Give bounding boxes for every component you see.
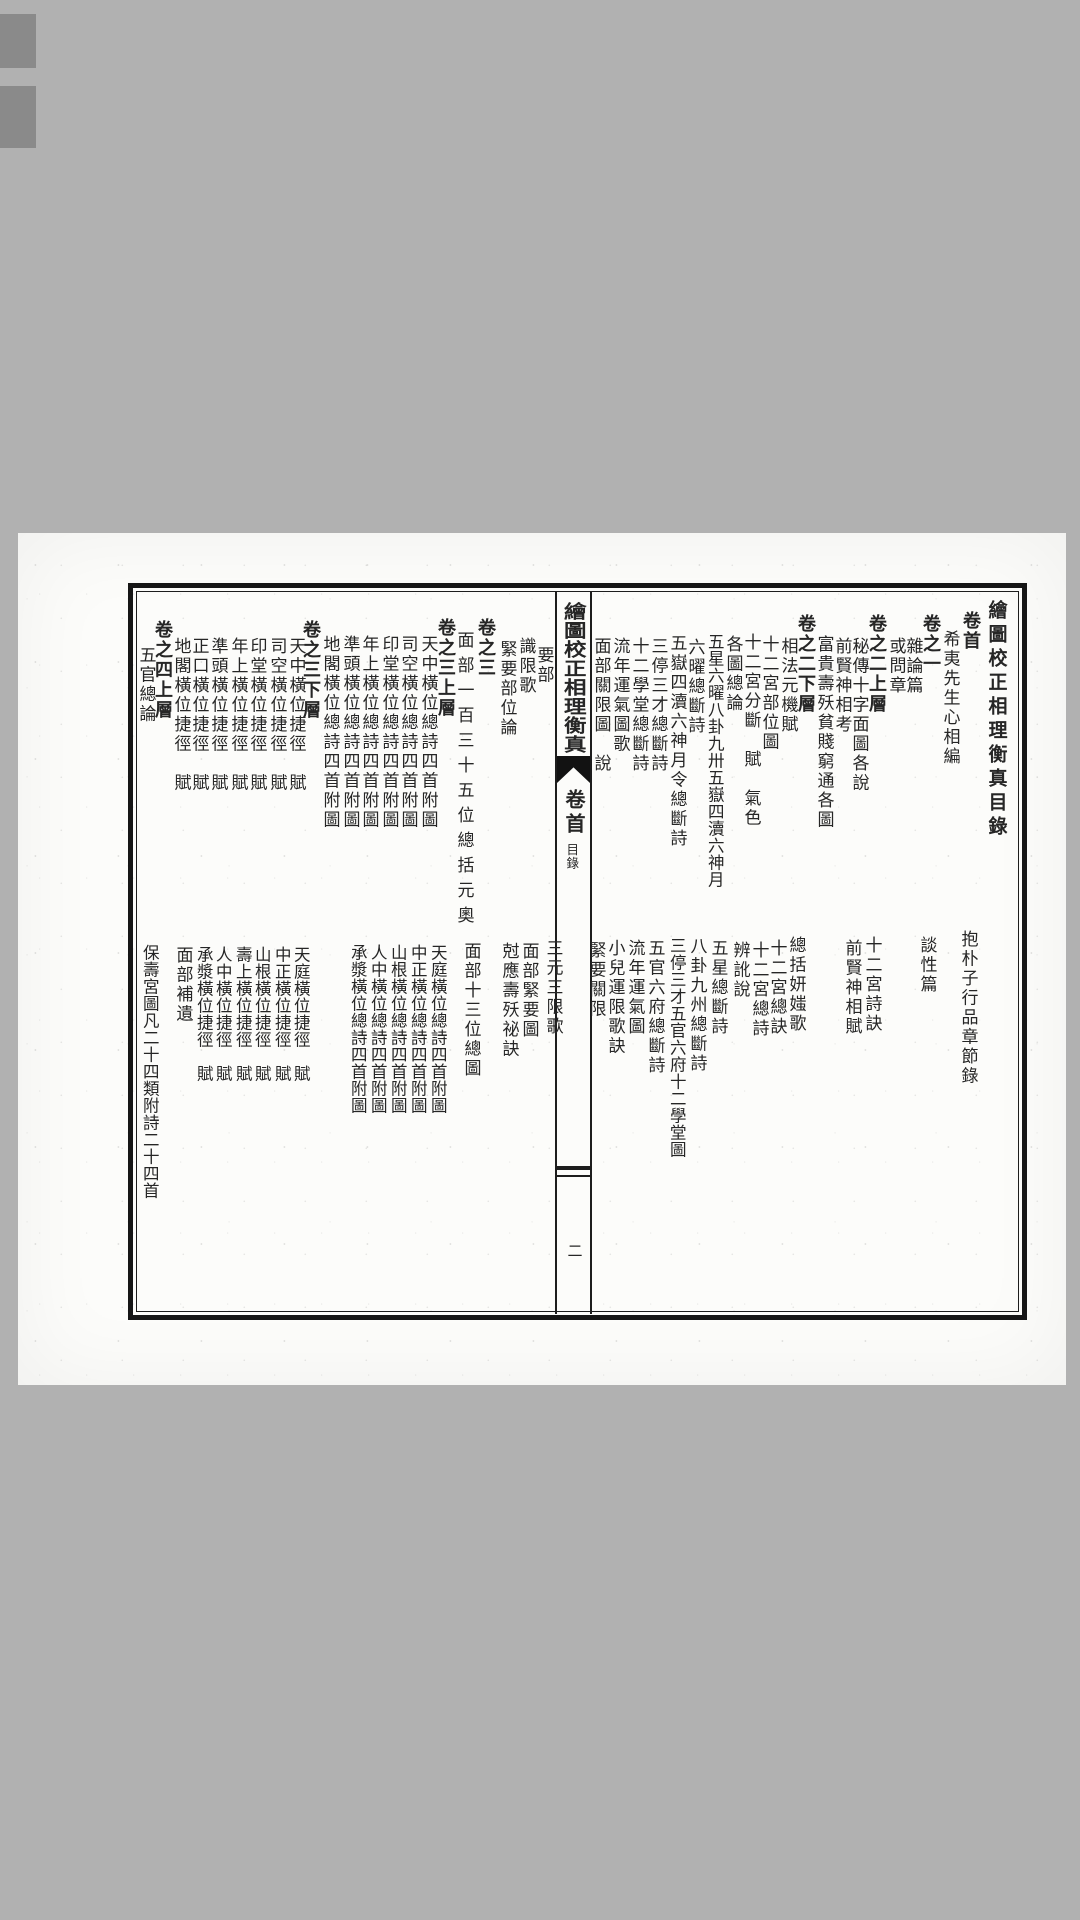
toc-entry: 面部一百三十五位總括元奧 bbox=[456, 631, 473, 931]
toc-entry: 十二宮詩訣 bbox=[864, 936, 881, 1034]
toc-entry: 人中橫位捷徑 賦 bbox=[214, 946, 231, 1082]
toc-section-header: 卷之二上層 bbox=[868, 614, 886, 714]
toc-entry: 希夷先生心相編 bbox=[942, 630, 959, 767]
spine-tick-mark bbox=[557, 1166, 590, 1170]
toc-entry: 天中橫位總詩四首附圖 bbox=[420, 635, 437, 830]
toc-entry: 十二宮總訣 bbox=[769, 939, 786, 1037]
spine-book-title: 繪圖校正相理衡真 bbox=[563, 602, 586, 754]
toc-entry: 雜論篇 bbox=[905, 637, 922, 696]
toc-entry: 抱朴子行品章節錄 bbox=[960, 930, 977, 1086]
toc-entry: 山根橫位捷徑 賦 bbox=[253, 946, 270, 1082]
toc-entry: 面部補遺 bbox=[175, 946, 192, 1024]
toc-entry: 辨訛說 bbox=[732, 941, 749, 1000]
toc-entry: 總括妍媸歌 bbox=[788, 936, 805, 1034]
toc-entry: 六曜總斷詩 bbox=[687, 638, 704, 736]
toc-entry: 十二學堂總斷詩 bbox=[631, 637, 648, 774]
toc-entry: 地閣橫位捷徑 賦 bbox=[173, 637, 190, 793]
spine-tick-mark bbox=[557, 1175, 590, 1177]
toc-entry: 富貴壽殀貧賤窮通各圖 bbox=[816, 635, 833, 830]
toc-title: 繪圖校正相理衡真目錄 bbox=[987, 600, 1006, 840]
toc-entry: 中正橫位總詩四首附圖 bbox=[409, 944, 426, 1114]
toc-entry: 天庭橫位捷徑 賦 bbox=[292, 946, 309, 1082]
toc-entry: 緊要關限 bbox=[588, 941, 605, 1019]
toc-entry: 或問章 bbox=[888, 637, 905, 696]
toc-entry: 五官總論 bbox=[138, 646, 155, 724]
toc-entry: 中正橫位捷徑 賦 bbox=[273, 946, 290, 1082]
scanned-book-page: 繪圖校正相理衡真 卷首 目錄 二 繪圖校正相理衡真目錄卷首希夷先生心相編卷之一雜… bbox=[0, 0, 1080, 1920]
toc-entry: 正口橫位捷徑 賦 bbox=[191, 637, 208, 793]
toc-entry: 談性篇 bbox=[919, 936, 936, 995]
spine-volume-label: 卷首 bbox=[563, 789, 583, 837]
toc-entry: 準頭橫位捷徑 賦 bbox=[210, 637, 227, 793]
toc-entry: 前賢神相賦 bbox=[844, 939, 861, 1037]
toc-section-header: 卷之二下層 bbox=[797, 614, 815, 714]
toc-entry: 年上橫位總詩四首附圖 bbox=[361, 635, 378, 830]
toc-entry: 天庭橫位總詩四首附圖 bbox=[429, 944, 446, 1114]
toc-section-header: 卷之三 bbox=[477, 618, 495, 678]
toc-section-header: 卷首 bbox=[962, 611, 980, 651]
toc-entry: 保壽宮圖凡二十四類附詩二十四首 bbox=[141, 944, 158, 1199]
toc-entry: 三元三限歌 bbox=[545, 939, 562, 1037]
toc-entry: 印堂橫位總詩四首附圖 bbox=[381, 635, 398, 830]
toc-entry: 八卦九州總斷詩 bbox=[689, 937, 706, 1074]
toc-entry: 司空橫位捷徑 賦 bbox=[269, 637, 286, 793]
spine-section-label: 目錄 bbox=[565, 843, 578, 870]
toc-entry: 天中橫位捷徑 賦 bbox=[288, 637, 305, 793]
toc-entry: 三停三才五官六府十二學堂圖 bbox=[668, 937, 685, 1158]
toc-entry: 尅應壽殀祕訣 bbox=[501, 942, 518, 1059]
toc-entry: 人中橫位總詩四首附圖 bbox=[369, 944, 386, 1114]
toc-entry: 十二宮分斷 賦 氣色 bbox=[743, 633, 760, 828]
toc-entry: 識限歌 bbox=[518, 637, 535, 696]
toc-entry: 準頭橫位總詩四首附圖 bbox=[342, 635, 359, 830]
toc-entry: 流年運氣圖歌 bbox=[612, 637, 629, 754]
toc-entry: 壽上橫位捷徑 賦 bbox=[234, 946, 251, 1082]
toc-section-header: 卷之一 bbox=[922, 614, 940, 674]
toc-entry: 五星總斷詩 bbox=[710, 939, 727, 1037]
toc-entry: 面部十三位總圖 bbox=[463, 942, 480, 1079]
toc-entry: 承漿橫位捷徑 賦 bbox=[195, 946, 212, 1082]
toc-entry: 年上橫位捷徑 賦 bbox=[230, 637, 247, 793]
toc-entry: 面部緊要圖 bbox=[521, 942, 538, 1040]
toc-entry: 地閣橫位總詩四首附圖 bbox=[322, 635, 339, 830]
toc-entry: 印堂橫位捷徑 賦 bbox=[249, 637, 266, 793]
toc-entry: 流年運氣圖 bbox=[627, 939, 644, 1037]
toc-section-header: 卷之三上層 bbox=[437, 618, 455, 718]
toc-entry: 相法元機賦 bbox=[780, 637, 797, 735]
scanner-artifact bbox=[0, 86, 36, 148]
toc-entry: 緊要部位論 bbox=[499, 640, 516, 738]
toc-entry: 五官六府總斷詩 bbox=[647, 939, 664, 1076]
toc-entry: 秘傳十字面圖各說 bbox=[851, 637, 868, 793]
toc-entry: 三停三才總斷詩 bbox=[650, 637, 667, 774]
toc-entry: 前賢神相考 bbox=[834, 637, 851, 735]
toc-entry: 小兒運限歌訣 bbox=[607, 939, 624, 1056]
toc-entry: 五嶽四瀆六神月令總斷詩 bbox=[669, 634, 686, 849]
toc-entry: 面部關限圖 說 bbox=[593, 637, 610, 774]
scanner-artifact bbox=[0, 14, 36, 68]
toc-entry: 山根橫位總詩四首附圖 bbox=[389, 944, 406, 1114]
toc-entry: 十二宮部位圖 bbox=[761, 635, 778, 752]
spine-page-number: 二 bbox=[566, 1243, 581, 1258]
toc-entry: 五星六曜八卦九卅五嶽四瀆六神月 bbox=[706, 633, 723, 888]
toc-entry: 要部 bbox=[536, 646, 553, 685]
toc-entry: 司空橫位總詩四首附圖 bbox=[400, 635, 417, 830]
toc-section-header: 卷之四上層 bbox=[154, 620, 172, 720]
toc-entry: 承漿橫位總詩四首附圖 bbox=[349, 944, 366, 1114]
toc-entry: 各圖總論 bbox=[725, 635, 742, 713]
toc-entry: 十二宮總詩 bbox=[751, 941, 768, 1039]
